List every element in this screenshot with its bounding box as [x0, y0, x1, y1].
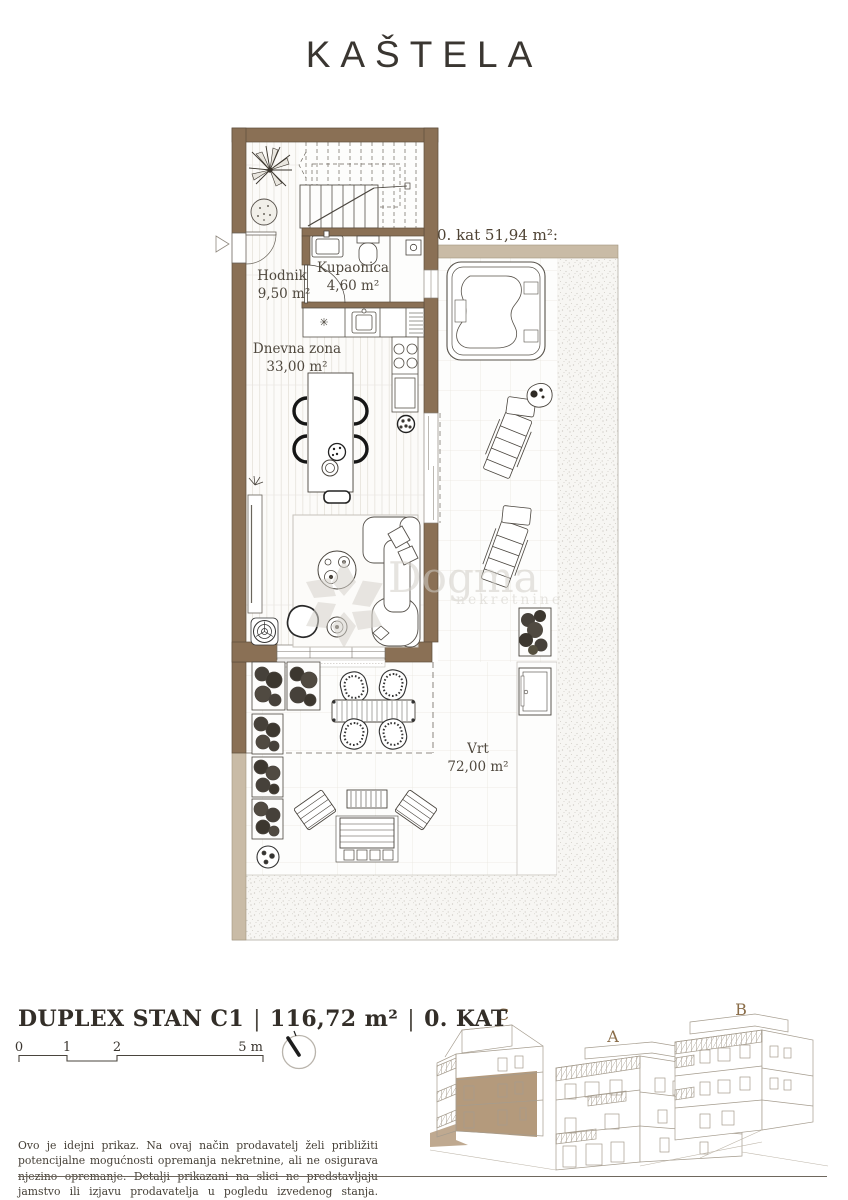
building-label-a: A — [606, 1027, 619, 1046]
garden-table — [332, 700, 415, 722]
terrace-door — [424, 413, 438, 523]
scale-label-1: 1 — [63, 1040, 71, 1055]
room-area-dnevna-zona: 33,00 m² — [266, 359, 327, 375]
decor-ball — [398, 416, 415, 433]
brochure-page: KAŠTELA — [0, 0, 848, 1200]
cooktop-symbol — [320, 318, 328, 326]
scale-bar: 0 1 2 5 m — [15, 1040, 263, 1062]
speaker — [251, 618, 278, 645]
garden-bench — [336, 816, 398, 862]
dining-bench — [324, 491, 350, 503]
unit-floor: 0. KAT — [424, 1006, 508, 1032]
unit-location-highlight — [456, 1071, 537, 1137]
unit-name: DUPLEX STAN C1 — [18, 1006, 244, 1032]
disclaimer-text: Ovo je idejni prikaz. Na ovaj način prod… — [18, 1138, 378, 1200]
scale-label-0: 0 — [15, 1040, 23, 1055]
footer-divider — [18, 1176, 827, 1177]
hallway-plant-shrub — [251, 199, 277, 225]
terrace-plant — [519, 608, 551, 656]
room-label-dnevna-zona: Dnevna zona — [253, 341, 341, 357]
unit-title: DUPLEX STAN C1|116,72 m²|0. KAT — [18, 1006, 508, 1032]
garden-round-pot — [257, 846, 279, 868]
lounge-table — [347, 790, 387, 808]
tv-console — [248, 495, 262, 613]
hot-tub — [447, 262, 545, 360]
room-label-hodnik: Hodnik — [257, 268, 308, 284]
terrace-low-wall — [438, 245, 618, 258]
room-label-vrt: Vrt — [466, 741, 489, 757]
scale-label-2: 2 — [113, 1040, 121, 1055]
building-label-b: B — [735, 1000, 747, 1019]
terrace-side-table — [527, 383, 552, 407]
stove-burner — [394, 344, 404, 354]
room-area-vrt: 72,00 m² — [447, 759, 508, 775]
room-label-kupaonica: Kupaonica — [317, 260, 389, 276]
toilet-cistern — [357, 236, 379, 243]
separator: | — [253, 1007, 261, 1032]
room-area-kupaonica: 4,60 m² — [327, 278, 380, 294]
unit-area: 116,72 m² — [270, 1006, 398, 1032]
building-b — [675, 1014, 813, 1140]
scale-label-5m: 5 m — [238, 1040, 263, 1055]
garden-low-wall — [232, 753, 246, 940]
garden-cabinet — [519, 668, 551, 715]
watermark-subtitle: nekretnine — [456, 592, 563, 608]
room-area-hodnik: 9,50 m² — [258, 286, 311, 302]
separator: | — [407, 1007, 415, 1032]
floor-area-label: 0. kat 51,94 m²: — [437, 226, 558, 244]
north-compass — [283, 1031, 316, 1069]
